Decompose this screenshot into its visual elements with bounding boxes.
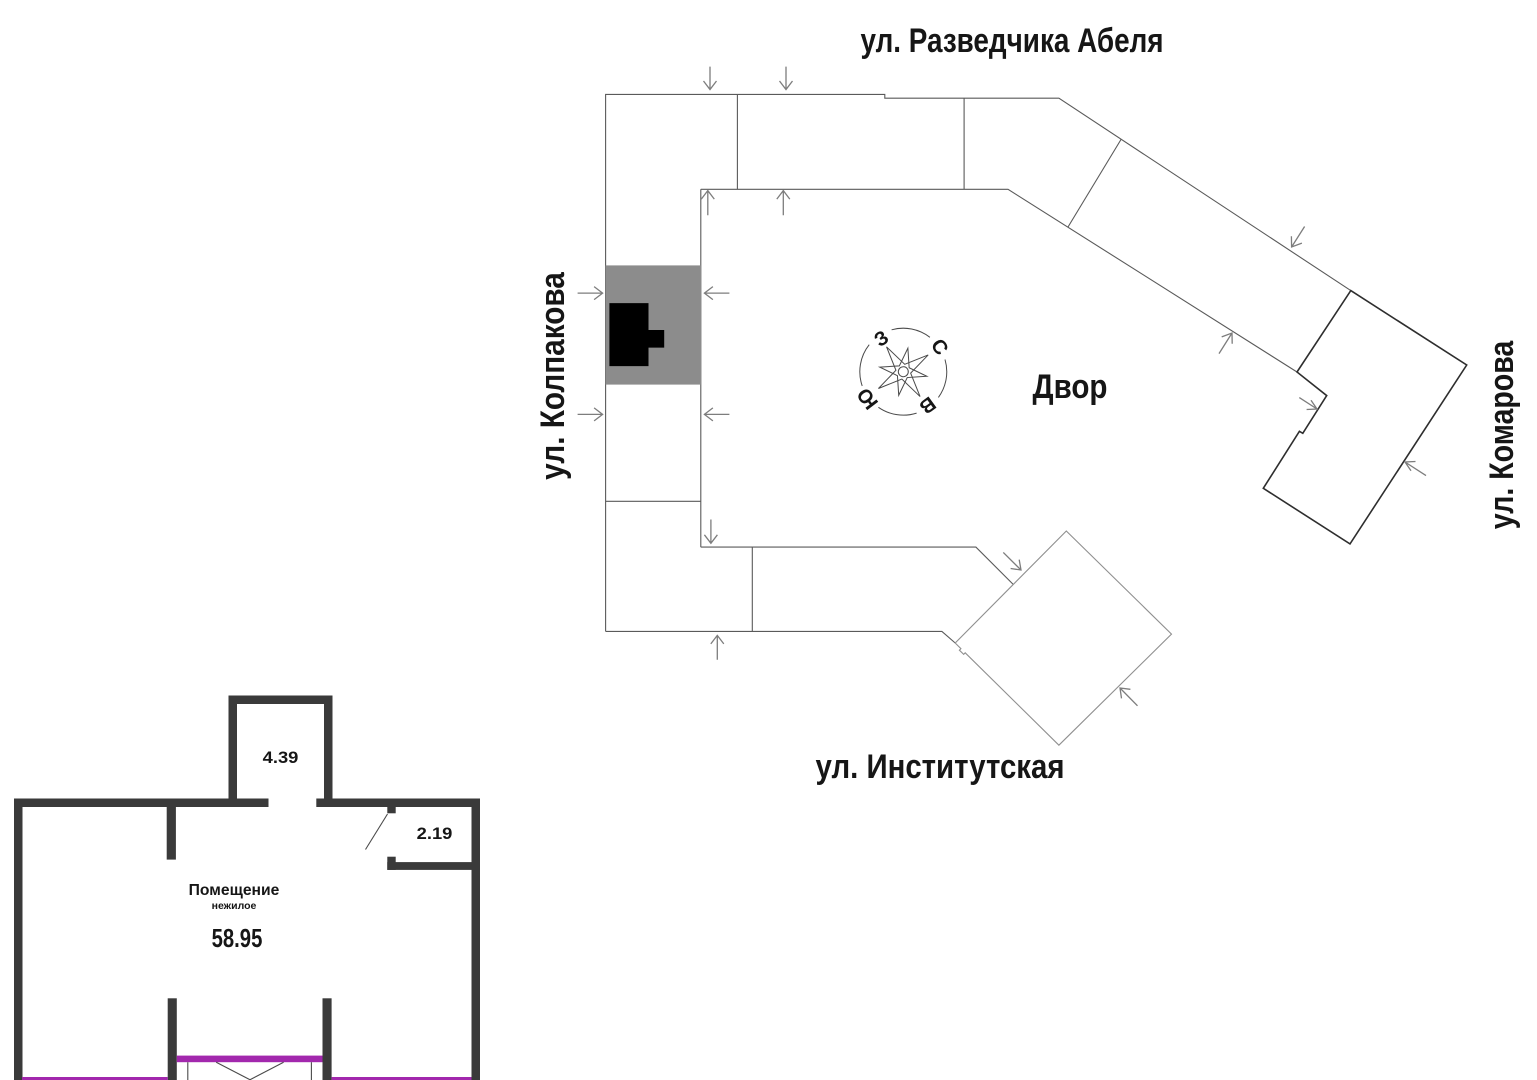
svg-text:Помещение: Помещение xyxy=(189,882,280,899)
svg-text:З: З xyxy=(870,327,893,352)
svg-text:нежилое: нежилое xyxy=(212,900,257,912)
svg-text:58.95: 58.95 xyxy=(212,924,263,953)
svg-text:2.19: 2.19 xyxy=(417,824,453,843)
svg-text:Двор: Двор xyxy=(1033,367,1108,405)
svg-text:С: С xyxy=(926,335,952,359)
svg-text:ул. Комарова: ул. Комарова xyxy=(1483,340,1521,529)
svg-text:ул. Разведчика Абеля: ул. Разведчика Абеля xyxy=(860,21,1163,59)
svg-text:4.39: 4.39 xyxy=(263,748,299,767)
svg-text:ул. Институтская: ул. Институтская xyxy=(815,747,1064,786)
svg-text:ул. Колпакова: ул. Колпакова xyxy=(533,272,571,480)
